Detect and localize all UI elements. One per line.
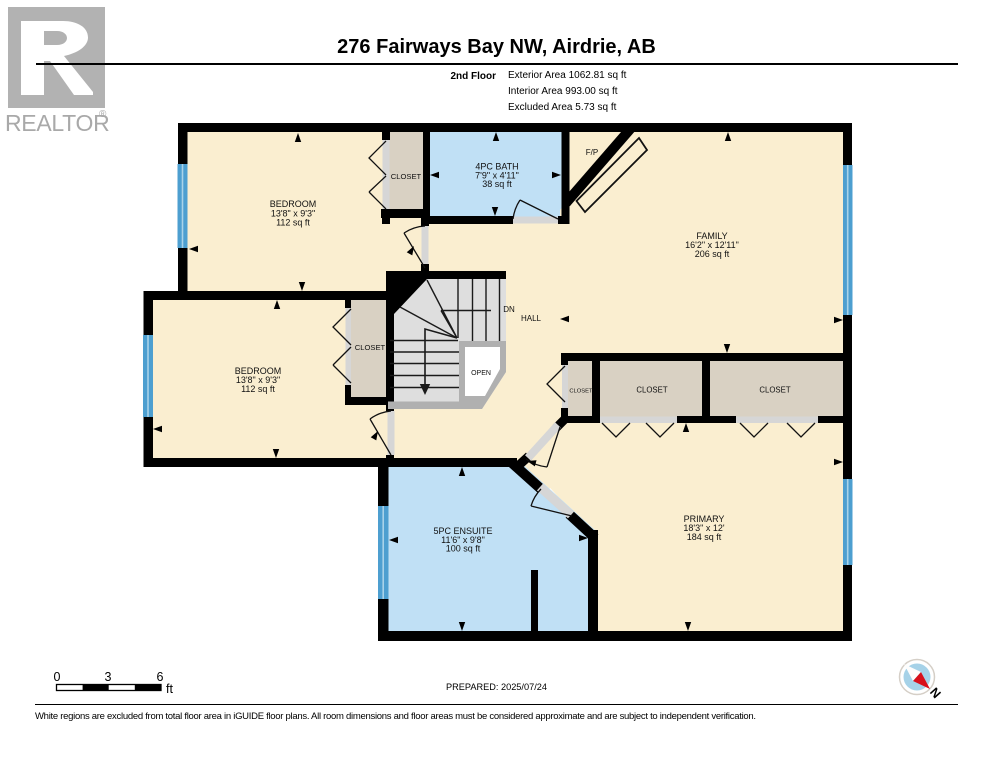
svg-text:CLOSET: CLOSET	[391, 172, 422, 181]
svg-text:OPEN: OPEN	[471, 370, 491, 377]
svg-text:DN: DN	[503, 305, 515, 314]
svg-text:F/P: F/P	[586, 148, 598, 157]
svg-text:206 sq ft: 206 sq ft	[695, 249, 730, 259]
svg-text:CLOSET: CLOSET	[636, 386, 667, 395]
svg-text:CLOSET: CLOSET	[759, 386, 790, 395]
svg-text:112 sq ft: 112 sq ft	[241, 384, 275, 394]
svg-text:BEDROOM: BEDROOM	[270, 199, 317, 209]
svg-text:CLOSET: CLOSET	[355, 343, 386, 352]
svg-text:112 sq ft: 112 sq ft	[276, 218, 310, 228]
svg-text:CLOSET: CLOSET	[569, 389, 593, 395]
svg-text:HALL: HALL	[521, 314, 542, 323]
svg-text:38 sq ft: 38 sq ft	[482, 179, 512, 189]
svg-text:100 sq ft: 100 sq ft	[446, 544, 481, 554]
svg-text:184 sq ft: 184 sq ft	[687, 532, 722, 542]
